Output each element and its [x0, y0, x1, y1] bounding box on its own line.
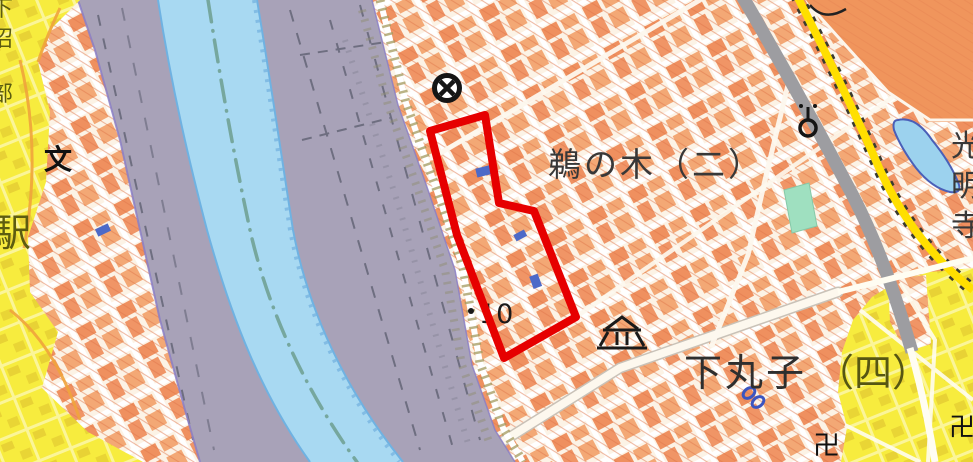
- spot-elevation-dot: [468, 308, 474, 314]
- district-label-shimomaruko: 下丸子: [684, 351, 807, 395]
- map-frame: 鵜の木（二） 下丸子 （四） 10 下 沼 部 駅 光 明 寺 文 卍 卍: [0, 0, 973, 462]
- edge-label-shimonumabe-char-1: 沼: [0, 27, 13, 52]
- station-label: 駅: [0, 211, 31, 255]
- temple-name-char-2: 寺: [951, 209, 973, 244]
- district-label-unoki: 鵜の木（二）: [548, 145, 764, 184]
- temple-symbol-b: 卍: [949, 413, 973, 443]
- temple-name-char-0: 光: [951, 129, 973, 164]
- district-suffix-shimomaruko: （四）: [816, 351, 930, 395]
- edge-label-shimonumabe-char-2: 部: [0, 82, 13, 107]
- school-symbol: 文: [44, 143, 72, 176]
- edge-label-shimonumabe-char-0: 下: [0, 0, 13, 22]
- map-canvas[interactable]: 鵜の木（二） 下丸子 （四） 10 下 沼 部 駅 光 明 寺 文 卍 卍: [0, 0, 973, 462]
- police-station-icon: [435, 76, 460, 101]
- temple-name-char-1: 明: [951, 169, 973, 204]
- temple-symbol-a: 卍: [813, 431, 840, 462]
